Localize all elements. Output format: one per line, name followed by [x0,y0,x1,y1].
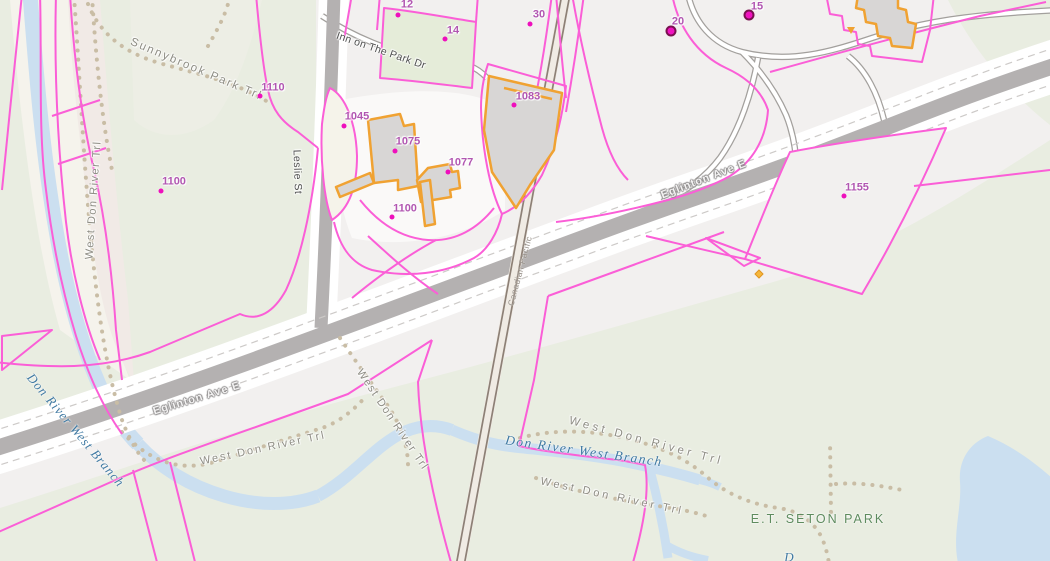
parking-lot-area [337,91,505,242]
orange-diamond-marker [755,270,763,278]
building-1075 [368,114,418,190]
basemap-graphics [0,0,1050,561]
map-canvas[interactable]: Sunnybrook Park TrlWest Don River TrlLes… [0,0,1050,561]
